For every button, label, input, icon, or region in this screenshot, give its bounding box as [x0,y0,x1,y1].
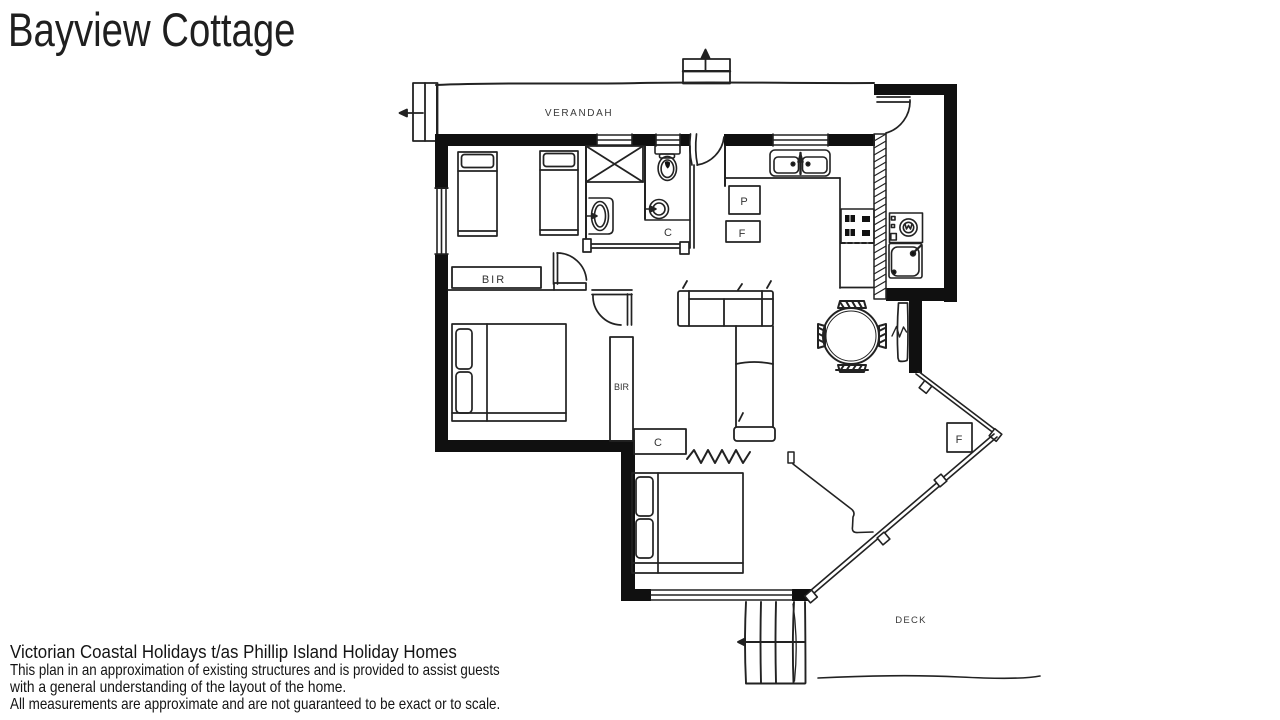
svg-text:F: F [956,434,963,446]
svg-text:P: P [740,196,747,208]
svg-text:DECK: DECK [895,615,927,626]
svg-text:BIR: BIR [614,382,630,392]
svg-text:BIR: BIR [482,274,506,286]
svg-text:C: C [664,227,672,239]
svg-text:C: C [654,437,662,449]
svg-text:F: F [739,228,746,240]
svg-text:VERANDAH: VERANDAH [545,108,613,119]
